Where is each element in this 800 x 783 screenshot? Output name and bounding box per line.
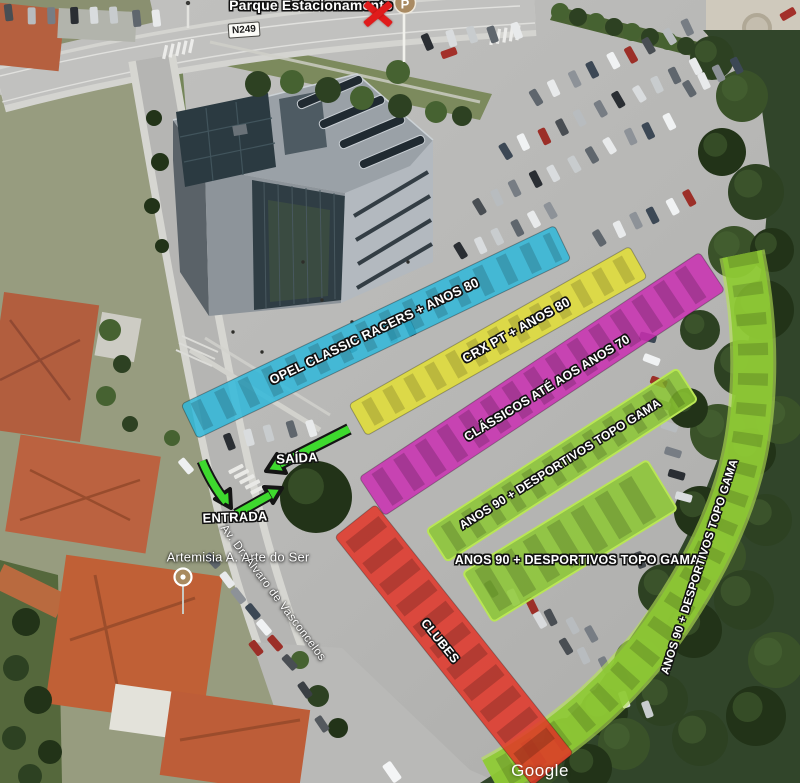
google-watermark: Google xyxy=(511,761,569,781)
zone-label-anos90-block: ANOS 90 + DESPORTIVOS TOPO GAMA xyxy=(455,553,700,567)
exit-label: SAÍDA xyxy=(276,449,318,466)
satellite-map-view: P Parque Estacionamento N249 OPEL CLASSI… xyxy=(0,0,800,783)
road-shield-n249: N249 xyxy=(228,21,261,38)
svg-text:P: P xyxy=(401,0,410,12)
satellite-image: P xyxy=(0,0,800,783)
entrance-label: ENTRADA xyxy=(202,508,267,525)
